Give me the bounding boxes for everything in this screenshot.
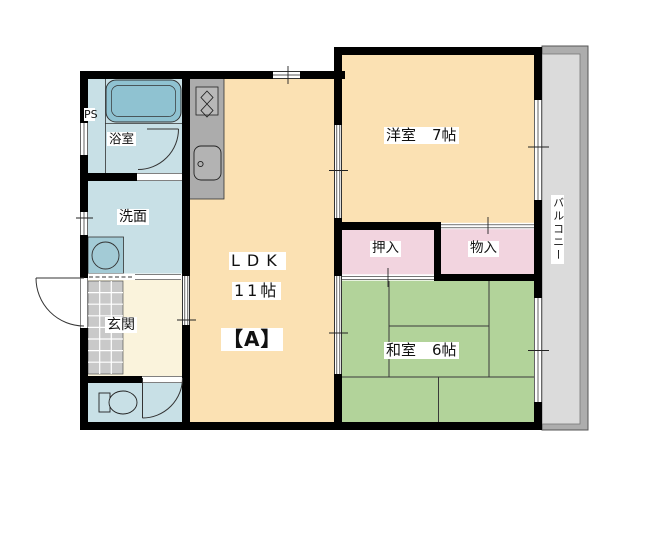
washroom-entrance-threshold [88,274,182,281]
wall-bottom [80,422,542,430]
ldk-label: LDK [229,252,286,270]
wall-closet-divider [434,222,441,281]
door-arc-entrance [36,278,84,326]
entrance-label: 玄関 [105,317,137,333]
bathtub-icon [106,80,181,122]
washroom-label: 洗面 [117,209,149,225]
ldk-area-label: 11帖 [232,282,281,300]
wall-western-closet [334,222,441,230]
wall-top-right [334,47,542,55]
japanese-room-label: 和室 6帖 [384,342,459,359]
wall-storage-south [434,274,542,281]
storage-label: 物入 [468,241,499,257]
bathroom-label: 浴室 [107,132,136,146]
western-room-area: 7帖 [432,127,457,144]
western-room-label: 洋室 7帖 [384,127,459,144]
closet-label: 押入 [370,241,401,257]
western-room-name: 洋室 [386,127,416,144]
unit-label: 【A】 [221,328,283,351]
entrance-door-opening [81,278,88,328]
toilet-door-opening [142,377,182,383]
floor-plan-drawing [0,0,661,541]
toilet-icon [99,391,137,414]
japanese-room-name: 和室 [386,342,416,359]
kitchen-counter [188,77,224,199]
floor-plan: 浴室 PS 洗面 玄関 LDK 11帖 【A】 洋室 7帖 押入 物入 和室 6… [0,0,661,541]
washing-machine-icon [88,237,124,274]
balcony-label: バルコニー [551,195,564,264]
japanese-room-area: 6帖 [432,342,457,359]
bathroom-door-opening [137,174,182,181]
wall-top-left [80,71,345,79]
window-bathroom-left [81,123,88,155]
pipe-space-label: PS [84,108,95,121]
